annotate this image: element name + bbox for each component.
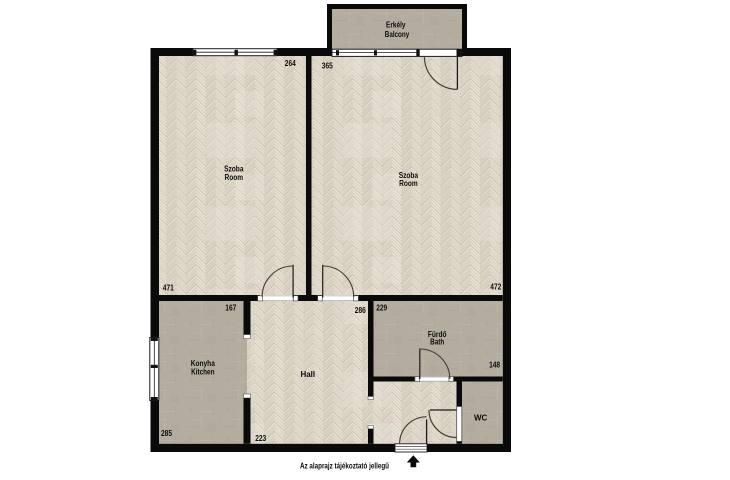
svg-text:471: 471 xyxy=(163,282,174,292)
svg-text:148: 148 xyxy=(489,359,500,369)
svg-text:Room: Room xyxy=(399,179,418,188)
svg-text:286: 286 xyxy=(355,305,366,315)
svg-text:285: 285 xyxy=(161,428,172,438)
svg-text:167: 167 xyxy=(225,303,236,313)
svg-text:Hall: Hall xyxy=(301,370,316,379)
svg-text:229: 229 xyxy=(376,302,387,312)
svg-text:WC: WC xyxy=(474,413,487,422)
svg-text:Kitchen: Kitchen xyxy=(191,367,214,376)
svg-text:223: 223 xyxy=(255,433,266,443)
svg-text:264: 264 xyxy=(285,58,296,68)
svg-text:Erkély: Erkély xyxy=(386,21,406,30)
svg-text:Balcony: Balcony xyxy=(385,30,410,39)
svg-text:Room: Room xyxy=(225,173,244,182)
svg-text:365: 365 xyxy=(322,61,333,71)
svg-text:Bath: Bath xyxy=(430,338,444,347)
svg-text:Az alaprajz tájékoztató jelleg: Az alaprajz tájékoztató jellegű xyxy=(300,462,389,471)
svg-text:472: 472 xyxy=(490,281,501,291)
